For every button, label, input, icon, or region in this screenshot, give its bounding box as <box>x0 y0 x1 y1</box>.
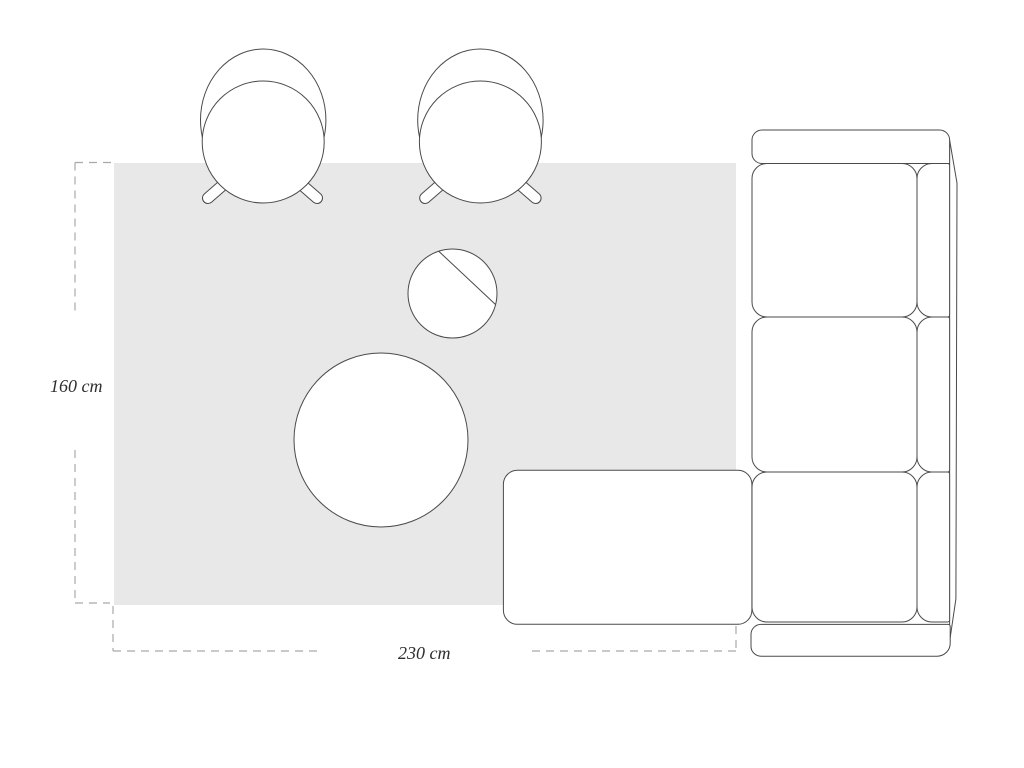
svg-text:160 cm: 160 cm <box>50 376 103 396</box>
svg-text:230 cm: 230 cm <box>398 643 451 663</box>
